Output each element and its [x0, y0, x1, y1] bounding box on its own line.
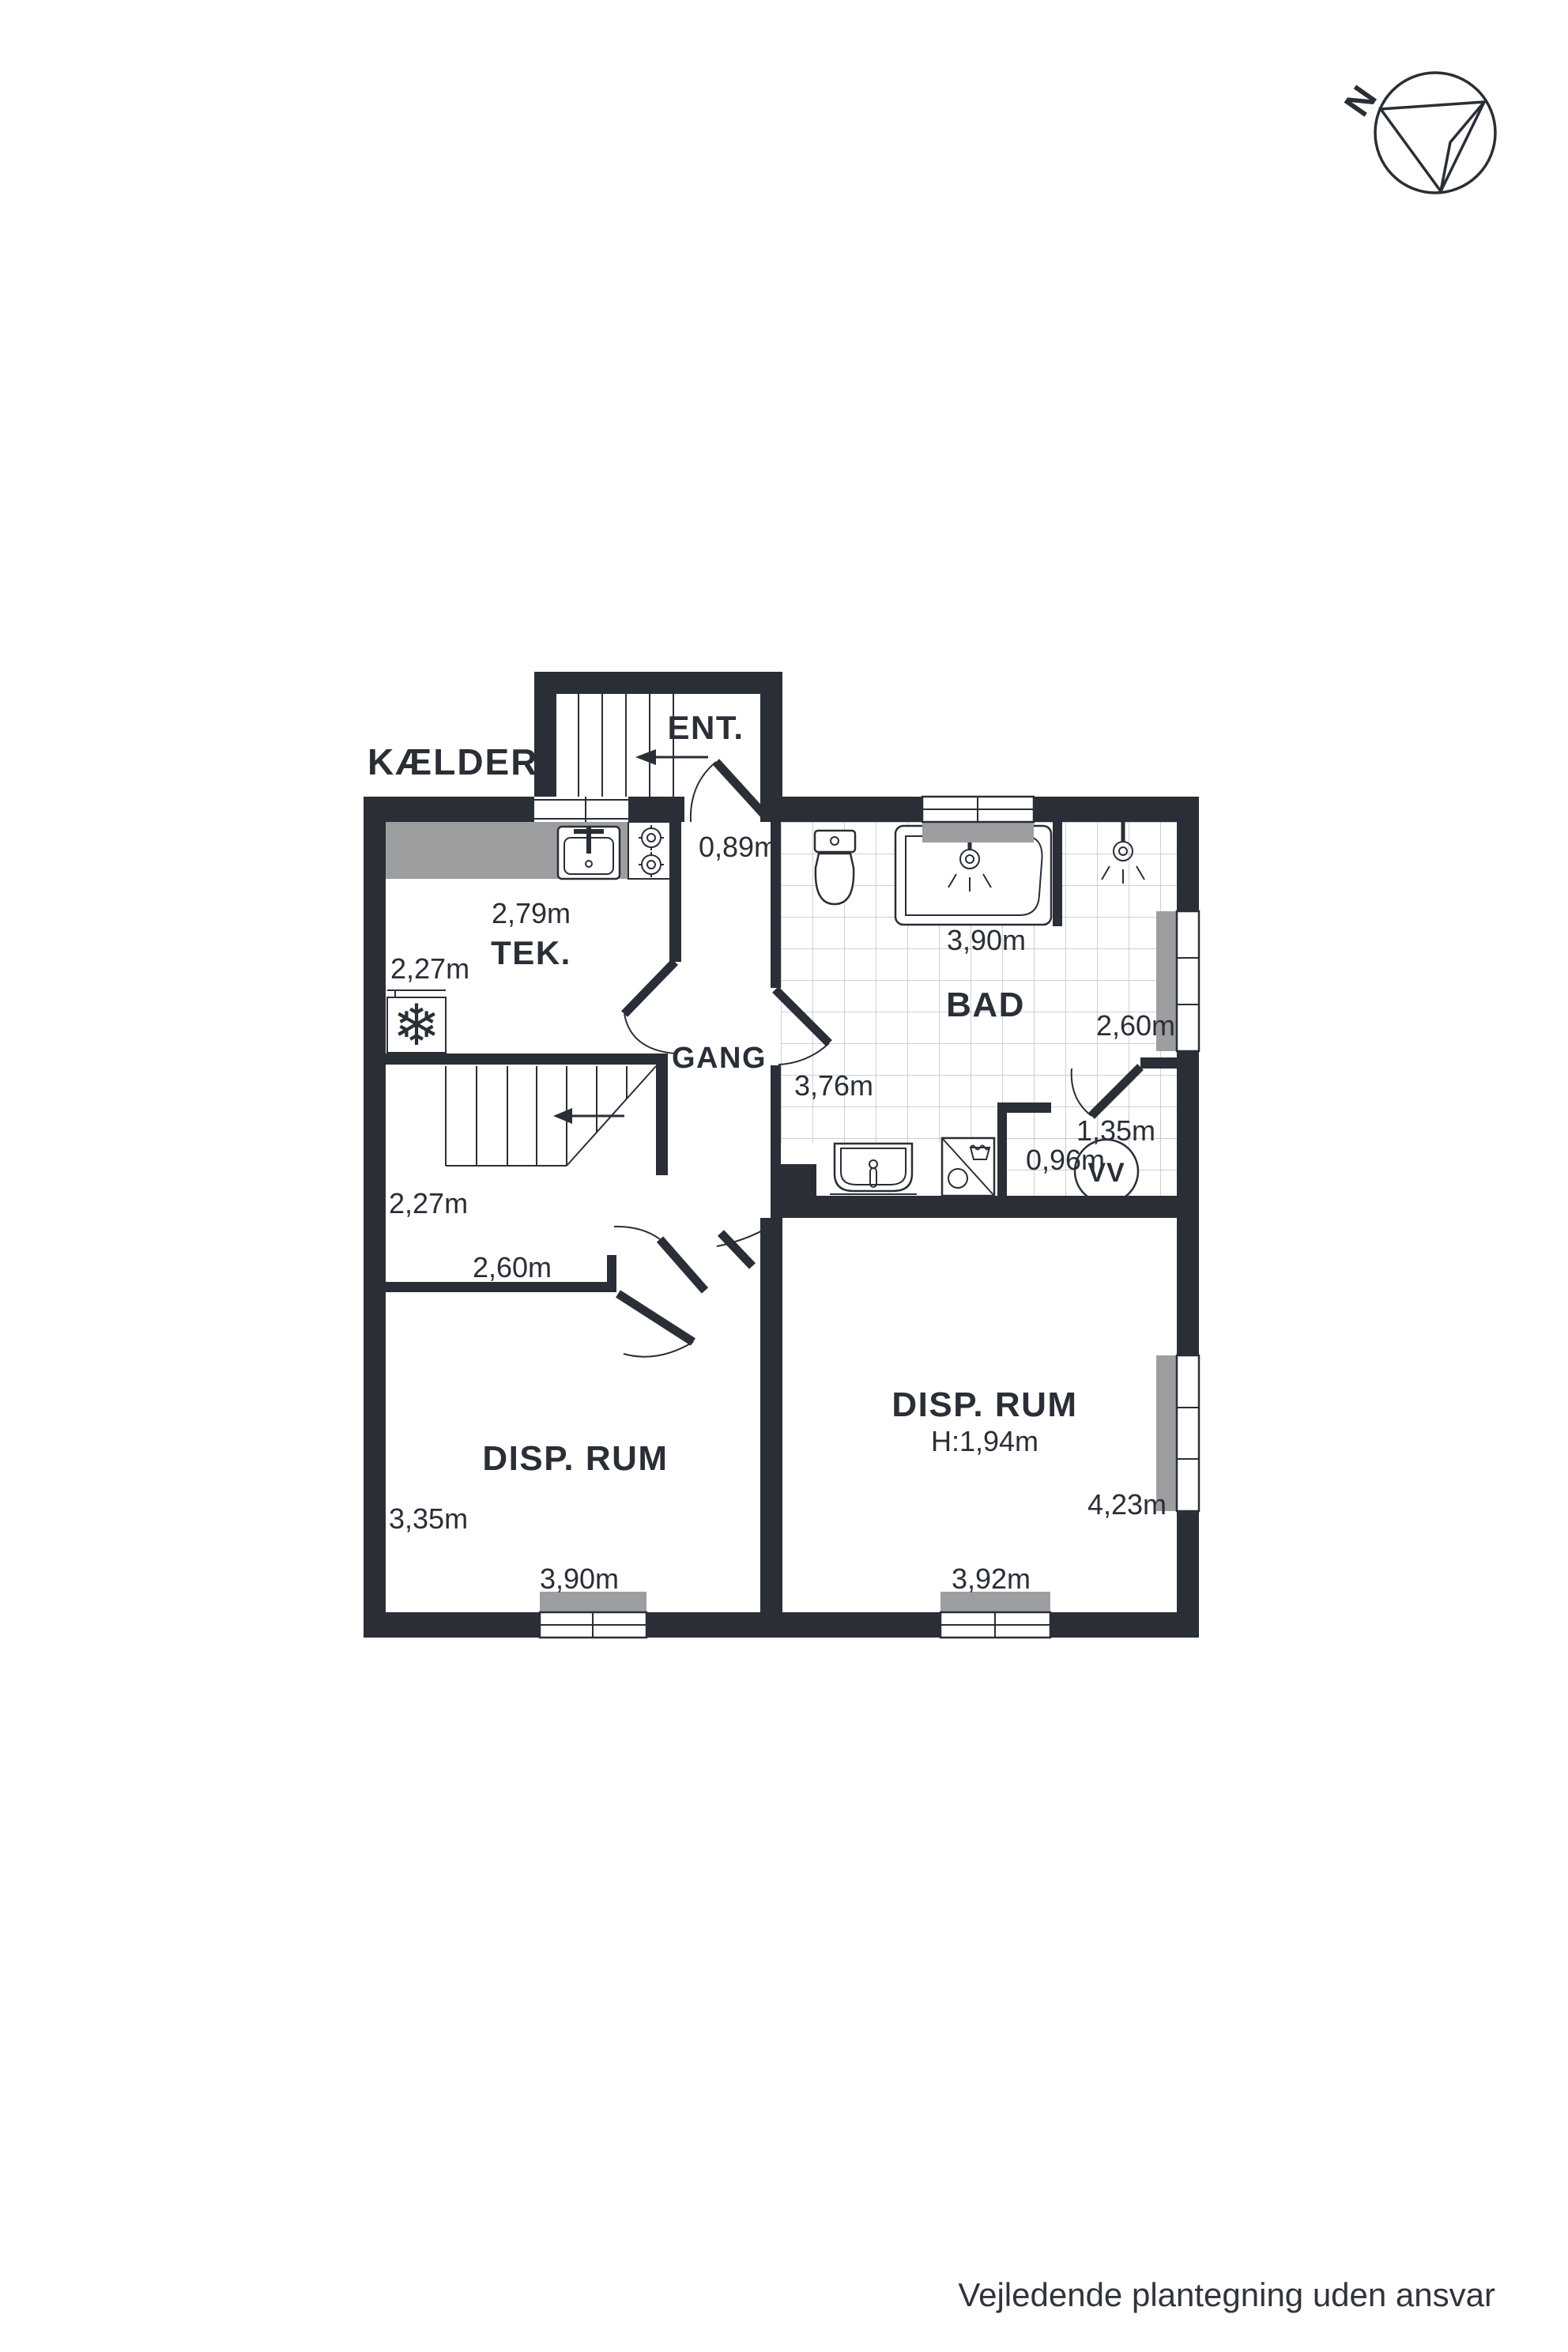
dim-bad-north: 3,90m	[947, 924, 1026, 956]
window-bath-north	[922, 797, 1034, 842]
room-label-bad: BAD	[946, 986, 1025, 1024]
dim-vv-width: 1,35m	[1076, 1114, 1155, 1147]
stairs-basement	[446, 1066, 656, 1166]
door-disp-right	[614, 1219, 781, 1291]
dim-disp-left-width: 3,90m	[540, 1562, 619, 1595]
dim-vv-depth: 0,96m	[1026, 1144, 1105, 1176]
dim-tek-depth: 2,27m	[390, 952, 469, 985]
compass: N	[1336, 73, 1495, 193]
room-label-disp-left: DISP. RUM	[482, 1439, 668, 1478]
dim-stairs-width: 2,27m	[389, 1187, 468, 1219]
compass-circle	[1375, 73, 1495, 193]
sink-icon	[558, 827, 620, 879]
washing-machine-icon	[942, 1138, 994, 1196]
window-disp-right-south	[940, 1592, 1050, 1638]
dim-disp-left-depth: 3,35m	[389, 1502, 468, 1535]
dim-disp-right-ceiling: H:1,94m	[931, 1425, 1038, 1457]
floor-plan-svg: ❄ VV	[0, 0, 1568, 2352]
room-label-gang: GANG	[672, 1042, 767, 1075]
window-disp-left-south	[540, 1592, 646, 1638]
vanity-sink-icon	[830, 1144, 917, 1194]
floor-plan-page: ❄ VV	[0, 0, 1568, 2352]
dim-bad-south: 3,76m	[794, 1069, 873, 1102]
stove-icon	[628, 822, 674, 879]
door-tek	[624, 962, 675, 1053]
snowflake-icon: ❄	[393, 992, 440, 1058]
stair-threshold	[534, 797, 628, 822]
dim-disp-right-width: 3,92m	[952, 1562, 1031, 1595]
room-label-ent: ENT.	[667, 709, 744, 746]
room-label-tek: TEK.	[491, 934, 571, 971]
room-label-disp-right: DISP. RUM	[891, 1385, 1077, 1424]
dim-hall-wall: 2,60m	[473, 1251, 552, 1283]
disclaimer-text: Vejledende plantegning uden ansvar	[958, 2276, 1495, 2313]
plan-title: KÆLDER	[367, 741, 538, 782]
toilet-icon	[815, 831, 855, 904]
dim-bad-east: 2,60m	[1096, 1009, 1175, 1042]
freezer-icon: ❄	[387, 990, 446, 1058]
dim-ent-door: 0,89m	[699, 831, 778, 863]
stair-direction-arrow	[635, 749, 656, 765]
door-disp-left	[618, 1294, 693, 1357]
dim-tek-width: 2,79m	[492, 897, 571, 929]
dim-disp-right-depth: 4,23m	[1087, 1488, 1167, 1521]
door-entrance	[691, 762, 765, 822]
stair-direction-arrow	[553, 1108, 572, 1124]
